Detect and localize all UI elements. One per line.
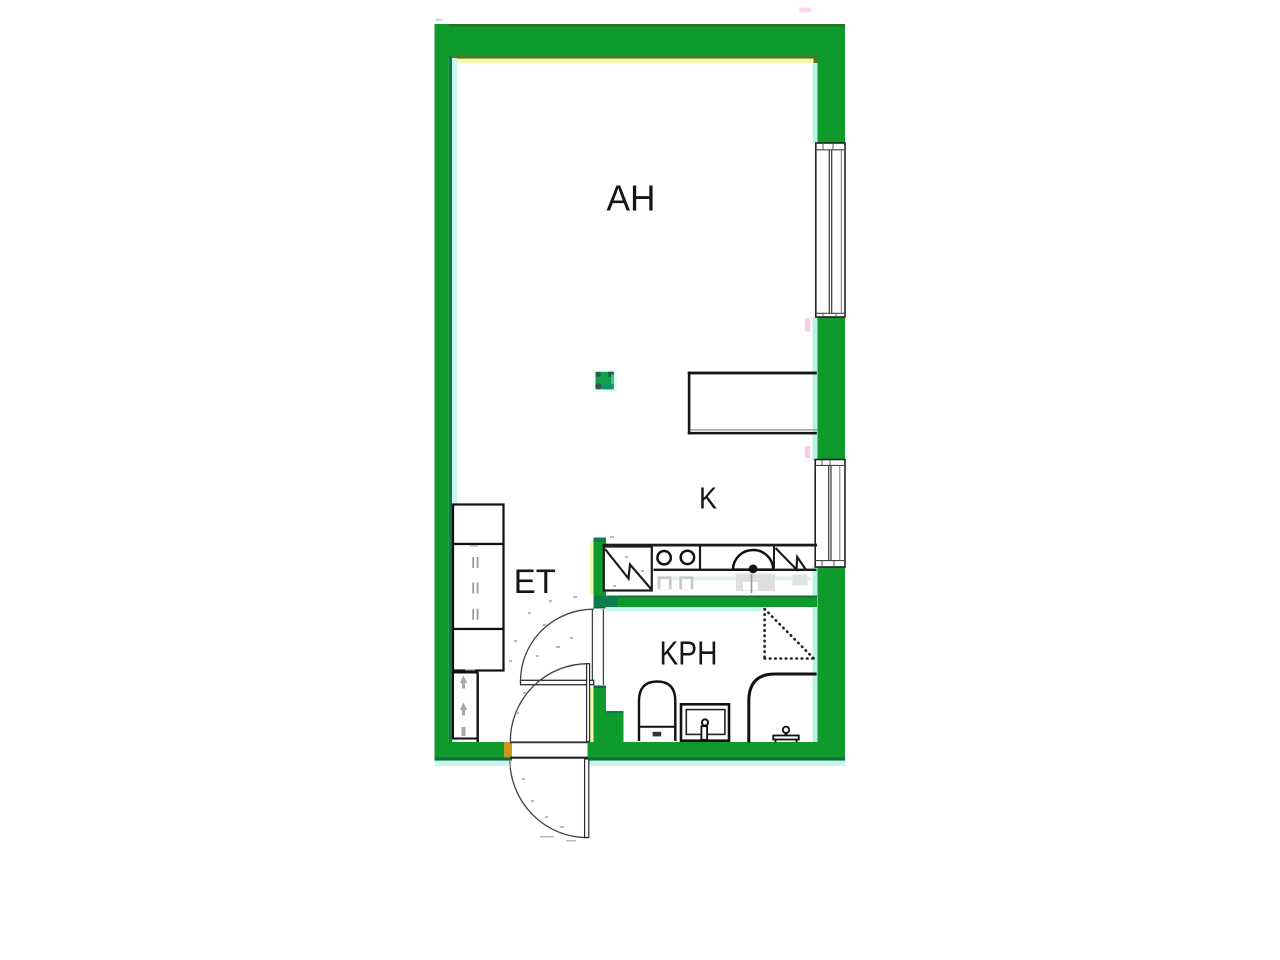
svg-text:ET: ET bbox=[514, 563, 556, 601]
svg-text:K: K bbox=[699, 481, 717, 516]
svg-text:KPH: KPH bbox=[660, 636, 718, 673]
svg-text:AH: AH bbox=[607, 177, 656, 218]
